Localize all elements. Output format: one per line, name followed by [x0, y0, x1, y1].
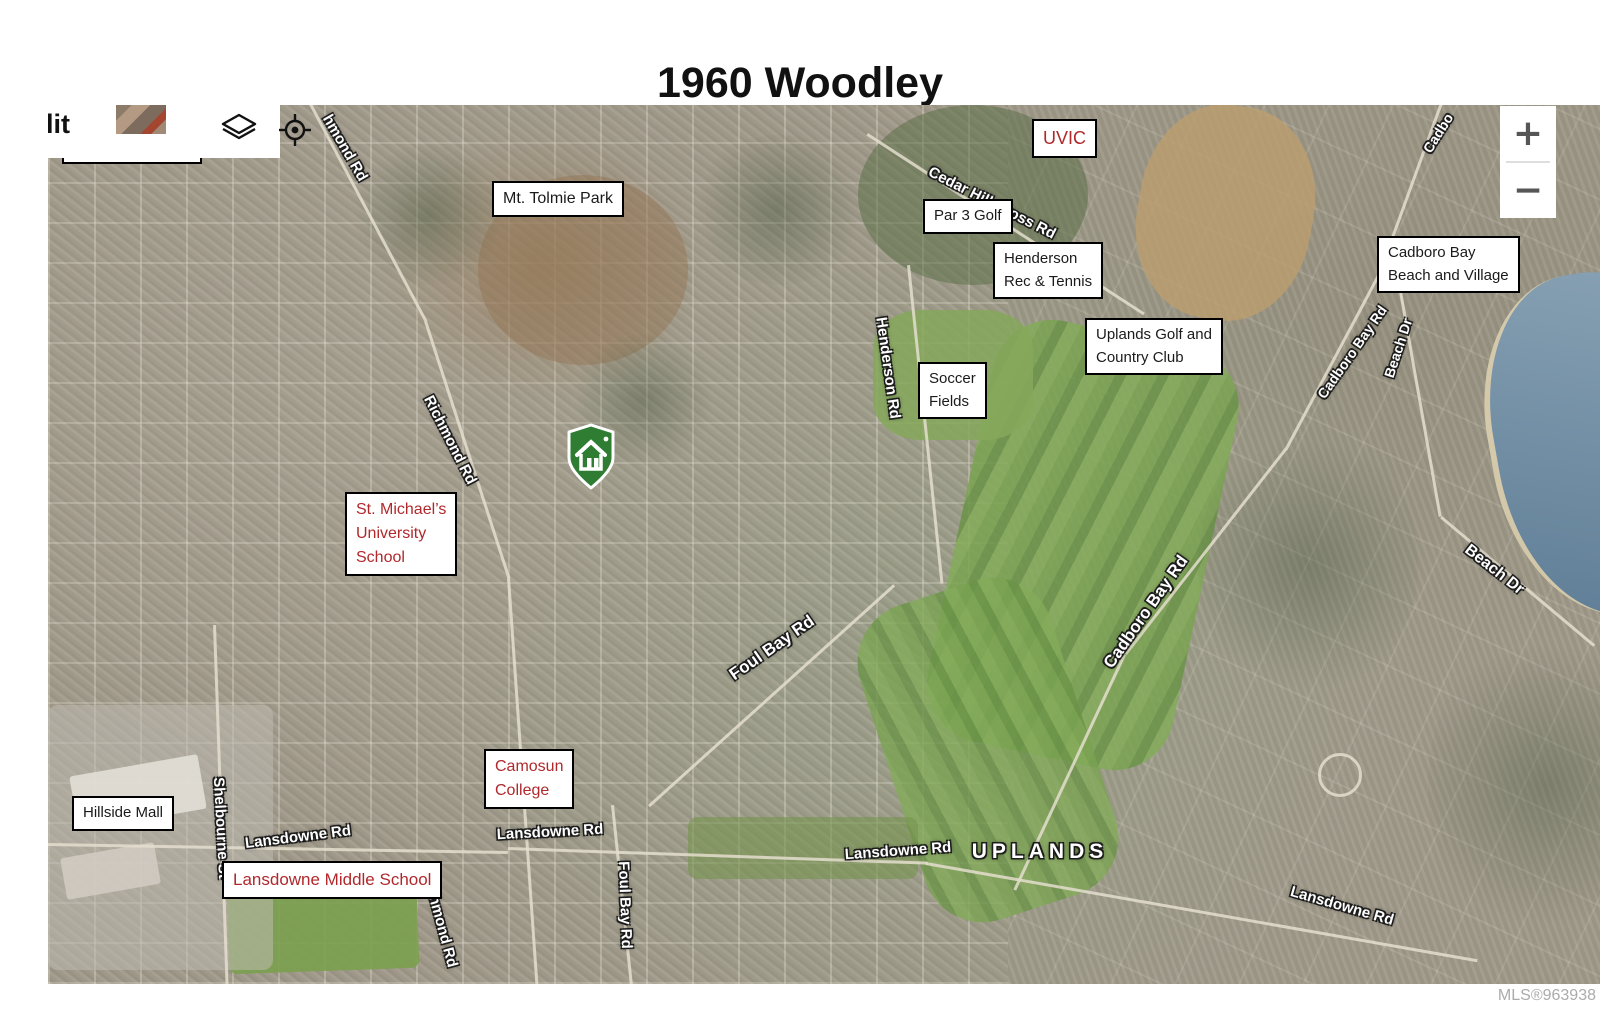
- par-3-golf-label: Par 3 Golf: [923, 199, 1013, 234]
- foul-bay-rd-diag-road-label: Foul Bay Rd: [726, 611, 819, 684]
- house-pin-icon: [563, 423, 619, 491]
- henderson-rec-tennis-label: HendersonRec & Tennis: [993, 242, 1103, 299]
- lansdowne-rd-mid-road-label: Lansdowne Rd: [496, 821, 603, 844]
- terrain-patch: [1428, 625, 1600, 945]
- road-line: [1397, 280, 1442, 517]
- richmond-rd-mid-road-label: Richmond Rd: [420, 393, 479, 488]
- zoom-in-button[interactable]: +: [1500, 106, 1556, 161]
- terrain-patch: [1198, 425, 1418, 705]
- cadboro-bay-rd-ne-road-label: Cadboro Bay Rd: [1314, 302, 1390, 401]
- hillside-mall-label: Hillside Mall: [72, 796, 174, 831]
- map-preview-thumbnail[interactable]: [116, 105, 166, 134]
- roundabout-road: [1318, 753, 1362, 797]
- lansdowne-middle-school-label: Lansdowne Middle School: [222, 861, 442, 899]
- locate-icon[interactable]: [278, 113, 312, 152]
- road-line: [648, 584, 895, 807]
- layers-icon[interactable]: [220, 113, 258, 146]
- soccer-fields-label: SoccerFields: [918, 362, 987, 419]
- terrain-patch: [348, 145, 508, 285]
- satellite-map[interactable]: hmond RdRichmond RdRichmond RdCedar Hill…: [48, 105, 1600, 984]
- terrain-patch: [48, 705, 273, 970]
- terrain-patch: [1121, 105, 1331, 334]
- camosun-college-label: CamosunCollege: [484, 749, 574, 809]
- uplands-area-road-label: UPLANDS: [972, 840, 1109, 864]
- mt-tolmie-park-label: Mt. Tolmie Park: [492, 181, 624, 217]
- foul-bay-rd-vert-road-label: Foul Bay Rd: [615, 861, 635, 949]
- road-line: [1284, 273, 1381, 451]
- zoom-out-button[interactable]: −: [1500, 163, 1556, 218]
- cadboro-bay-beach-village-label: Cadboro BayBeach and Village: [1377, 236, 1520, 293]
- map-type-label-partial[interactable]: lit: [48, 109, 70, 140]
- st-michaels-university-school-label: St. Michael’sUniversitySchool: [345, 492, 457, 576]
- terrain-patch: [688, 135, 868, 285]
- uvic-label: UVIC: [1032, 119, 1097, 158]
- mls-number: MLS®963938: [1498, 987, 1596, 1005]
- page-title: 1960 Woodley: [0, 59, 1600, 108]
- zoom-control: + −: [1500, 106, 1556, 218]
- page: 1960 Woodley hmond RdRichmond RdRichmond…: [0, 0, 1600, 1020]
- terrain-patch: [1462, 252, 1600, 634]
- cadboro-bay-rd-top-road-label: Cadbo: [1420, 110, 1457, 155]
- lansdowne-rd-se-road-label: Lansdowne Rd: [1288, 883, 1395, 929]
- uplands-golf-country-club-label: Uplands Golf andCountry Club: [1085, 318, 1223, 375]
- property-marker[interactable]: [563, 423, 619, 496]
- beach-dr-east-road-label: Beach Dr: [1461, 541, 1527, 598]
